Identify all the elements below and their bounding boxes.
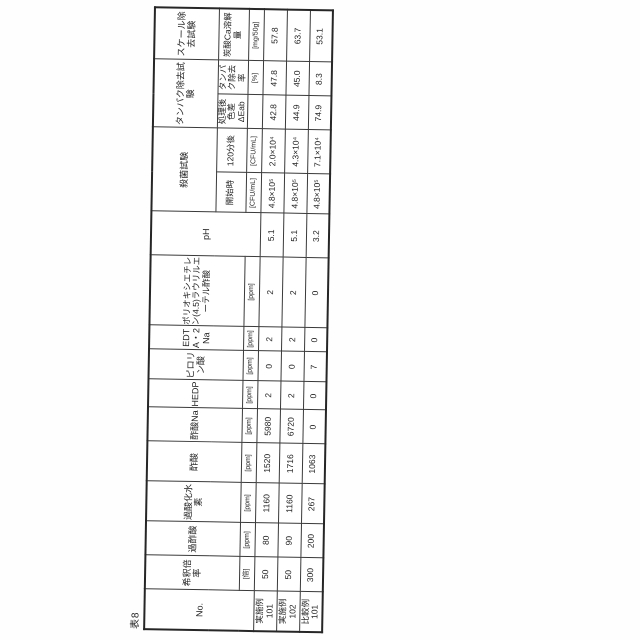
unit-ppm: [ppm]: [242, 351, 258, 381]
data-cell: 2.0×10⁴: [261, 129, 285, 173]
data-cell: 6720: [279, 410, 303, 444]
data-cell: 2: [281, 258, 305, 328]
data-cell: 4.8×10⁵: [260, 173, 284, 213]
col-header-edta-2na: EDTA・2Na: [149, 325, 243, 351]
data-cell: 1716: [279, 443, 303, 483]
unit-empty: [247, 95, 263, 129]
data-cell: 50: [277, 557, 301, 591]
data-cell: 42.8: [262, 95, 286, 129]
data-cell: 0: [304, 258, 328, 328]
data-cell: 1063: [302, 444, 326, 484]
unit-ppm: [ppm]: [240, 483, 256, 523]
data-cell: 47.8: [262, 61, 286, 95]
row-label: 実施例102: [276, 591, 300, 631]
col-header-peracetic-acid: 過酢酸: [145, 521, 240, 557]
data-cell: 5980: [256, 409, 280, 443]
sub-header-after-120min: 120分後: [216, 128, 247, 173]
data-cell: 5.1: [283, 214, 307, 258]
unit-ppm: [ppm]: [242, 381, 257, 409]
data-cell: 7.1×10⁴: [307, 130, 331, 174]
data-cell: 1520: [256, 443, 280, 483]
data-cell: 0: [257, 351, 281, 381]
data-cell: 0: [303, 382, 326, 410]
sub-header-color-difference-deab: 処理後色差ΔEab: [217, 94, 248, 129]
unit-ppm: [ppm]: [243, 327, 258, 351]
unit-cfu: [CFU/mL]: [246, 129, 262, 173]
unit-ppm: [ppm]: [239, 523, 255, 557]
unit-mg-per-50g: [mg/50g]: [248, 9, 264, 61]
unit-cfu: [CFU/mL]: [245, 173, 261, 213]
data-cell: 63.7: [286, 10, 310, 62]
col-header-hydrogen-peroxide: 過酸化水素: [146, 481, 241, 523]
data-cell: 2: [258, 257, 282, 327]
data-cell: 200: [300, 524, 324, 558]
sub-header-calcium-carbonate-dissolution: 炭酸Ca溶解量: [218, 8, 249, 61]
col-header-polyoxyethylene-lauryl-ether-acetic-acid: ポリオキシエチレン(4.5)ラウリルエーテル酢酸: [149, 255, 244, 327]
table-logical-block: 表8 No. 希釈倍率 過酢酸 過酸化水素 酢酸 酢酸Na: [129, 6, 336, 633]
col-header-no: No.: [144, 589, 254, 631]
data-cell: 50: [254, 557, 278, 591]
row-label: 実施例101: [253, 591, 277, 631]
data-cell: 2: [281, 328, 304, 352]
data-cell: 2: [257, 381, 280, 409]
data-cell: 4.8×10⁵: [283, 174, 307, 214]
unit-ppm: [ppm]: [241, 409, 257, 443]
sub-header-start: 開始時: [215, 172, 246, 213]
data-cell: 80: [254, 523, 278, 557]
data-cell: 44.9: [285, 96, 309, 130]
data-cell: 5.1: [260, 213, 284, 257]
col-header-ph: pH: [151, 211, 261, 257]
data-cell: 4.3×10⁴: [284, 130, 308, 174]
data-cell: 7: [303, 352, 327, 382]
data-cell: 300: [300, 558, 324, 592]
group-header-bactericidal-test: 殺菌試験: [151, 127, 216, 212]
data-cell: 2: [280, 382, 303, 410]
data-cell: 0: [280, 352, 304, 382]
data-cell: 0: [302, 410, 326, 444]
row-label: 比較例101: [299, 592, 323, 632]
data-cell: 57.8: [263, 9, 287, 61]
group-header-protein-removal-test: タンパク除去試験: [153, 59, 218, 128]
unit-dilution: [倍]: [239, 557, 255, 591]
data-cell: 53.1: [309, 10, 333, 62]
scanned-document-page: 表8 No. 希釈倍率 過酢酸 過酸化水素 酢酸 酢酸Na: [0, 0, 640, 640]
unit-percent: [%]: [247, 61, 263, 95]
rotated-table-area: 表8 No. 希釈倍率 過酢酸 過酸化水素 酢酸 酢酸Na: [129, 6, 336, 635]
data-cell: 8.3: [308, 62, 332, 96]
data-cell: 0: [304, 328, 327, 352]
data-cell: 45.0: [285, 62, 309, 96]
col-header-acetic-acid: 酢酸: [147, 441, 242, 483]
group-header-scale-removal-test: スケール除去試験: [154, 7, 219, 60]
data-cell: 74.9: [308, 96, 332, 130]
col-header-sodium-acetate: 酢酸Na: [147, 407, 242, 443]
data-cell: 90: [277, 523, 301, 557]
data-cell: 267: [301, 484, 325, 524]
data-cell: 2: [258, 327, 281, 351]
data-cell: 4.8×10⁵: [306, 174, 330, 214]
data-table: No. 希釈倍率 過酢酸 過酸化水素 酢酸 酢酸Na HEDP ピロリン酸 ED…: [143, 6, 334, 633]
header-row-1: No. 希釈倍率 過酢酸 過酸化水素 酢酸 酢酸Na HEDP ピロリン酸 ED…: [144, 7, 219, 630]
data-cell: 1160: [278, 483, 302, 523]
data-cell: 1160: [255, 483, 279, 523]
data-cell: 3.2: [306, 214, 330, 258]
col-header-dilution: 希釈倍率: [145, 555, 240, 591]
col-header-pyrophosphoric-acid: ピロリン酸: [148, 349, 243, 381]
unit-ppm: [ppm]: [241, 443, 257, 483]
unit-ppm: [ppm]: [243, 257, 259, 327]
col-header-hedp: HEDP: [148, 379, 242, 409]
sub-header-protein-removal-rate: タンパク除去率: [217, 60, 248, 95]
